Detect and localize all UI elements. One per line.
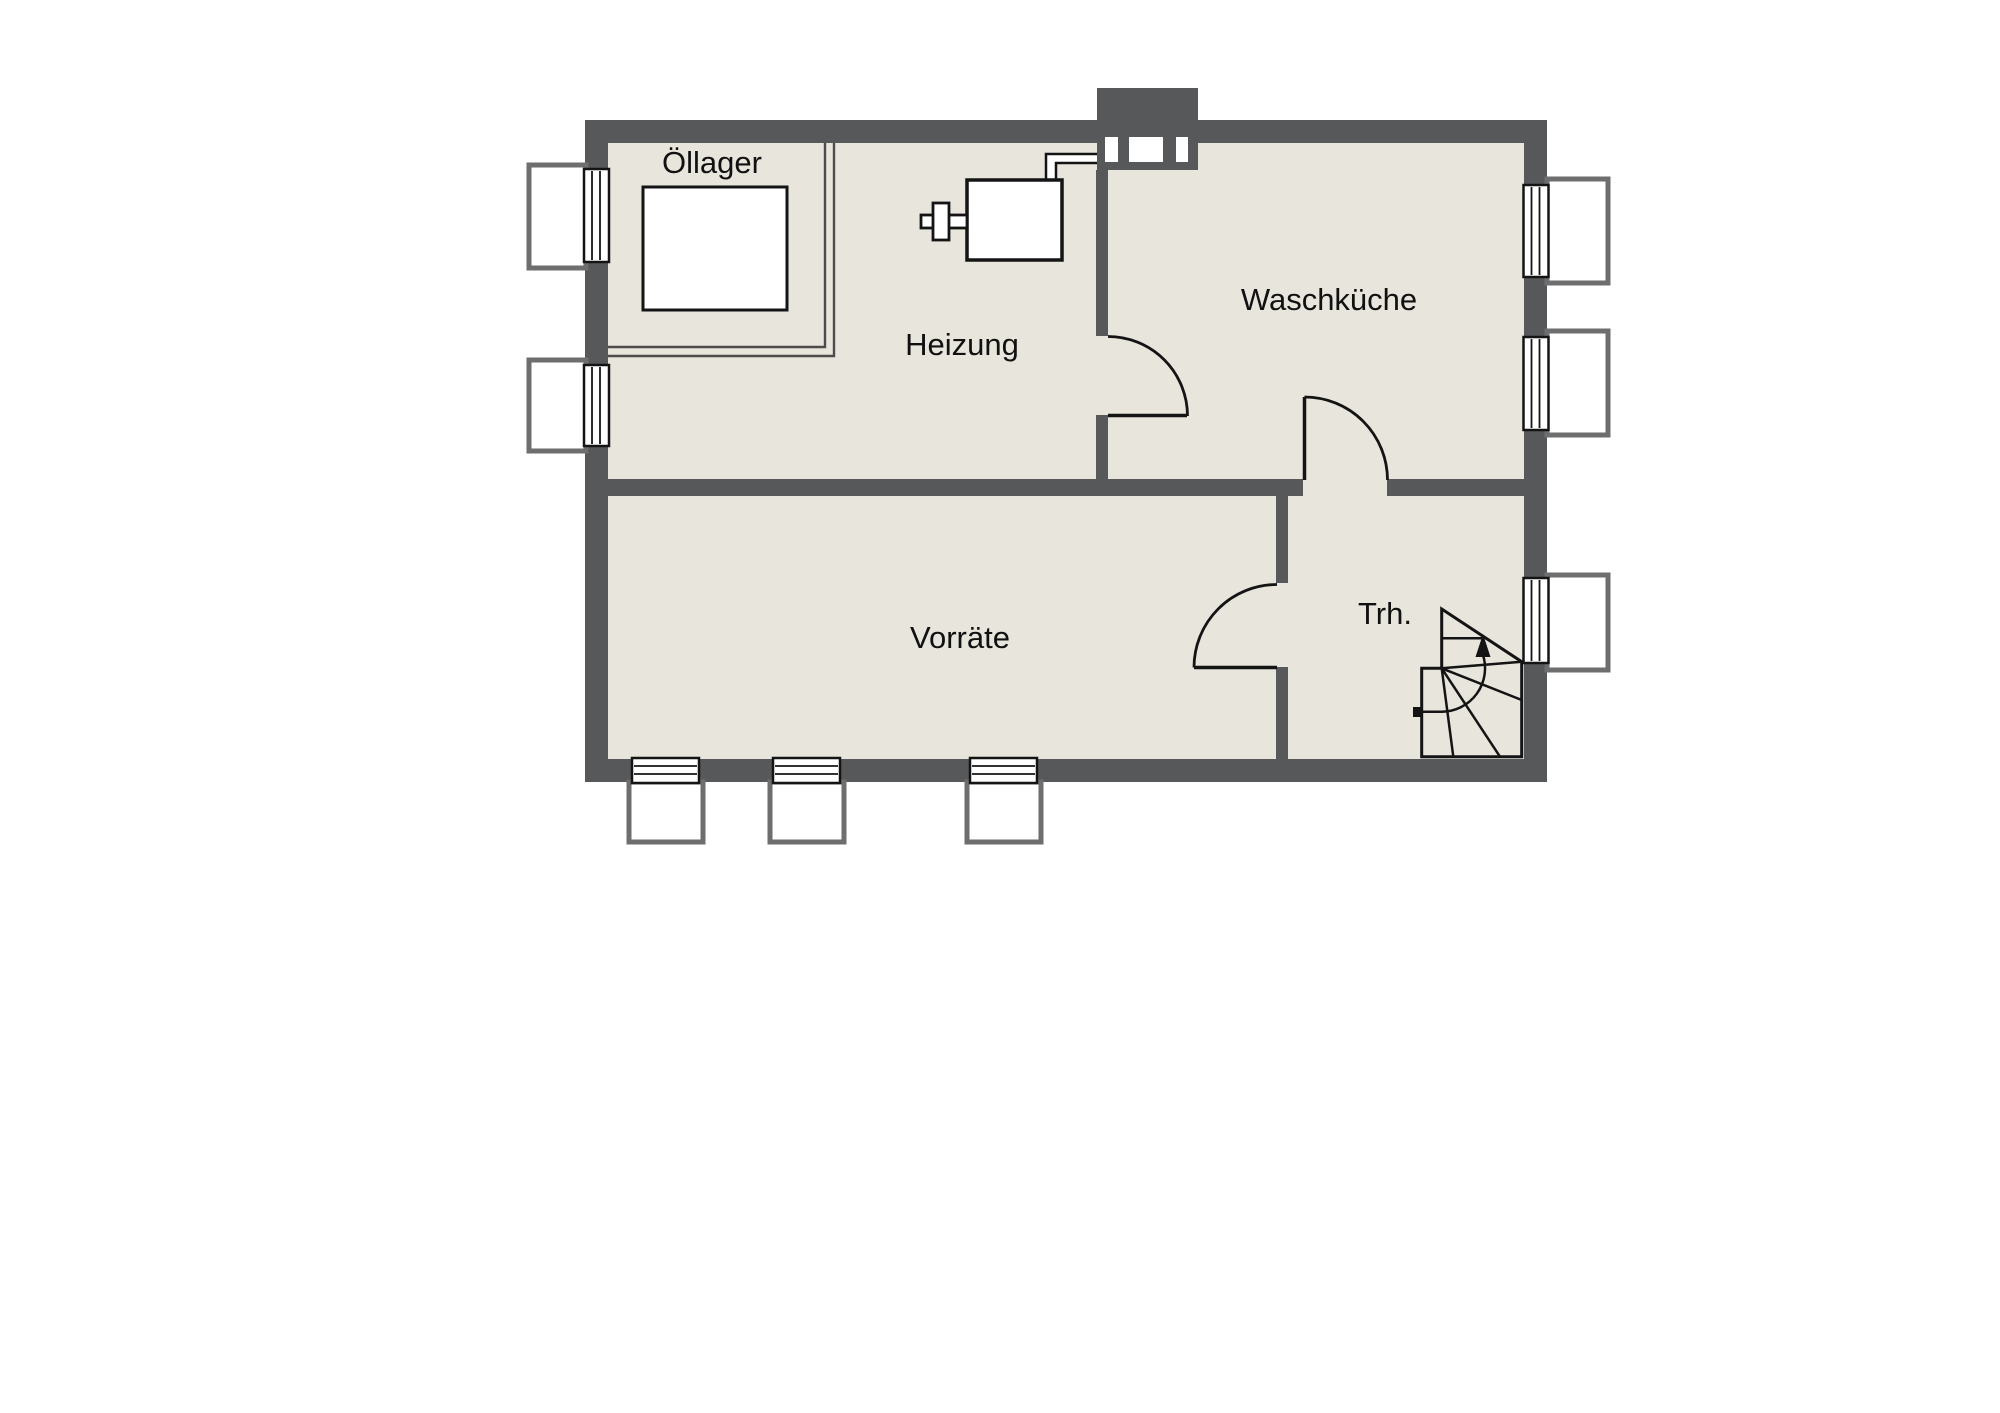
- window-left-1: [584, 169, 609, 262]
- chimney-flue-center: [1129, 137, 1163, 162]
- wall-interior-horizontal-right: [1387, 479, 1524, 496]
- boiler: [967, 180, 1062, 260]
- room-label-waschkueche: Waschküche: [1241, 282, 1417, 317]
- chimney-flue-right: [1176, 137, 1188, 162]
- room-label-trh: Trh.: [1358, 596, 1412, 631]
- window-left-2: [584, 365, 609, 446]
- window-left-1-sill: [529, 165, 586, 268]
- window-left-2-sill: [529, 360, 586, 451]
- chimney-flue-left: [1105, 137, 1118, 162]
- window-right-2-sill: [1547, 331, 1608, 435]
- wall-vorraete-trh-upper: [1276, 496, 1288, 583]
- window-bottom-1-sill: [629, 782, 703, 842]
- window-right-3-sill: [1547, 575, 1608, 670]
- stairs-walkline-start-marker: [1413, 707, 1423, 717]
- wall-vorraete-trh-lower: [1276, 667, 1288, 759]
- window-bottom-3-sill: [967, 782, 1041, 842]
- oil-tank: [643, 187, 787, 310]
- window-bottom-2-sill: [770, 782, 844, 842]
- room-label-vorraete: Vorräte: [910, 620, 1010, 655]
- wall-heizung-waschkueche-lower: [1096, 415, 1108, 479]
- boiler-pump-valve: [933, 203, 949, 240]
- wall-bottom: [585, 759, 1547, 782]
- room-label-oellager: Öllager: [662, 145, 762, 180]
- window-right-1: [1524, 185, 1549, 277]
- wall-heizung-waschkueche-upper: [1096, 170, 1108, 336]
- window-right-2: [1524, 337, 1549, 430]
- wall-top: [585, 120, 1547, 143]
- window-bottom-2: [773, 758, 840, 783]
- room-label-heizung: Heizung: [905, 327, 1019, 362]
- wall-interior-horizontal-left: [608, 479, 1303, 496]
- window-right-3: [1524, 578, 1549, 663]
- window-bottom-3: [970, 758, 1037, 783]
- window-right-1-sill: [1547, 179, 1608, 283]
- window-bottom-1: [632, 758, 699, 783]
- floor-plan: Öllager Heizung Waschküche Vorräte Trh.: [0, 0, 2000, 1413]
